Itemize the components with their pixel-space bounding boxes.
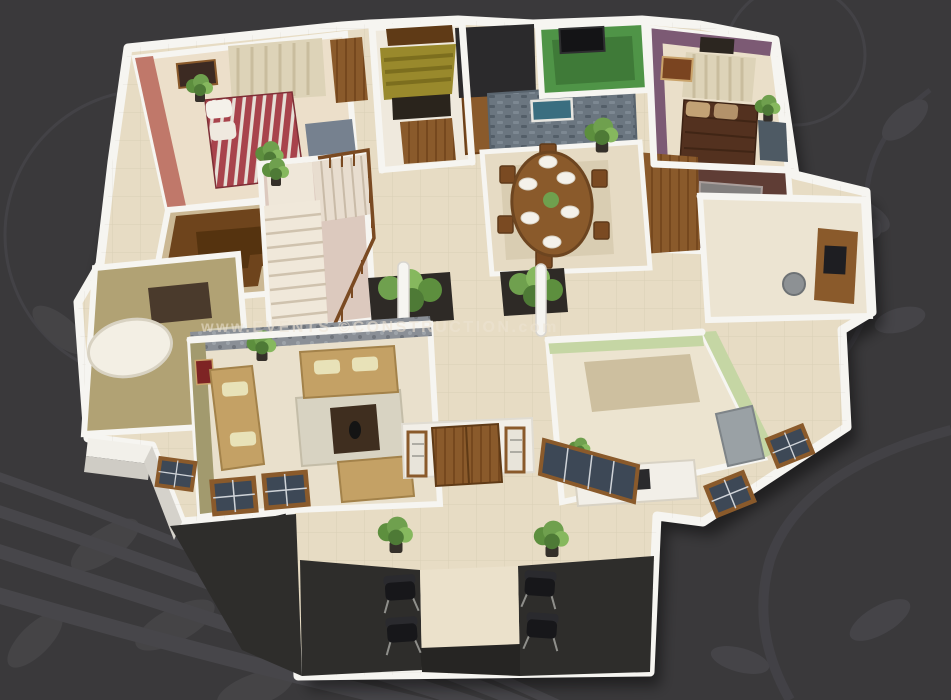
vanity xyxy=(148,282,212,324)
sidelight-window xyxy=(506,428,524,472)
sidelight-window xyxy=(408,432,426,476)
sofa-cushion xyxy=(222,381,249,397)
office-chair xyxy=(783,273,805,295)
room-bedroom-2 xyxy=(648,28,788,170)
kitchen-rug xyxy=(584,354,700,412)
pillow-tan xyxy=(685,101,710,118)
sofa-cushion xyxy=(230,431,257,447)
foyer-window-band xyxy=(392,94,451,120)
pillow xyxy=(205,99,233,120)
sofa-cushion xyxy=(352,356,379,371)
bench-rug xyxy=(758,120,788,162)
room-terrace xyxy=(538,22,648,96)
pillow-tan xyxy=(713,103,738,120)
wall-art-dark xyxy=(699,37,734,54)
cat xyxy=(349,421,361,439)
room-study xyxy=(700,196,870,320)
wall-tv xyxy=(559,27,604,53)
sofa-cushion xyxy=(314,359,341,374)
monitor xyxy=(823,245,846,274)
curtain-wall xyxy=(228,38,326,102)
room-staircase xyxy=(260,150,374,332)
pillow xyxy=(209,121,237,142)
seascape-picture xyxy=(532,99,573,121)
floor-plan-render: www.EVENTS ©CONSTRUCTION.com xyxy=(0,0,951,700)
wall-art-2 xyxy=(661,57,692,81)
wardrobe xyxy=(330,37,368,103)
foyer-door xyxy=(400,118,456,164)
render-canvas: www.EVENTS ©CONSTRUCTION.com xyxy=(0,0,951,700)
room-living xyxy=(157,316,440,514)
table-centerpiece xyxy=(543,192,559,208)
walkway-steps xyxy=(420,644,520,676)
watermark-text: www.EVENTS ©CONSTRUCTION.com xyxy=(200,319,559,336)
